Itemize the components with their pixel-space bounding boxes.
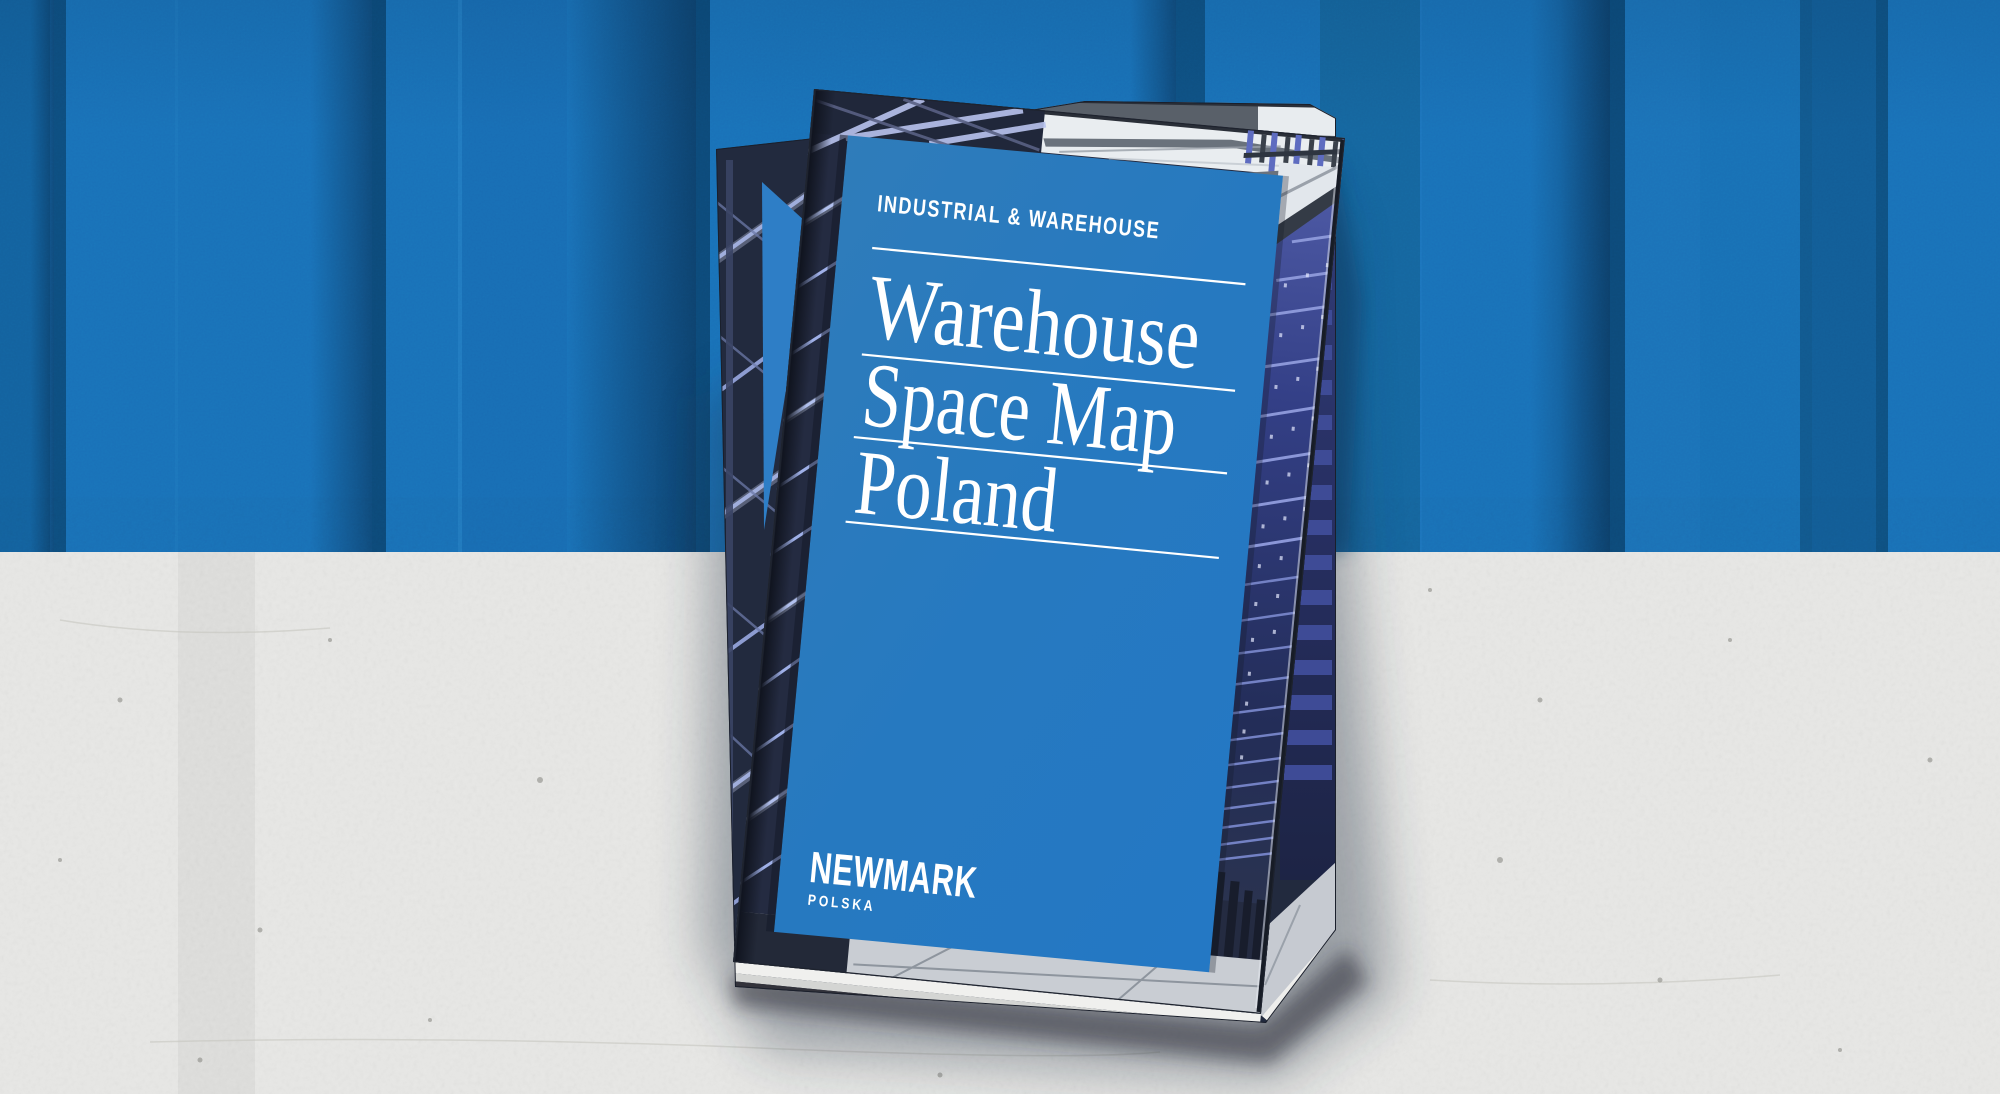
svg-text:Poland: Poland: [851, 431, 1063, 552]
